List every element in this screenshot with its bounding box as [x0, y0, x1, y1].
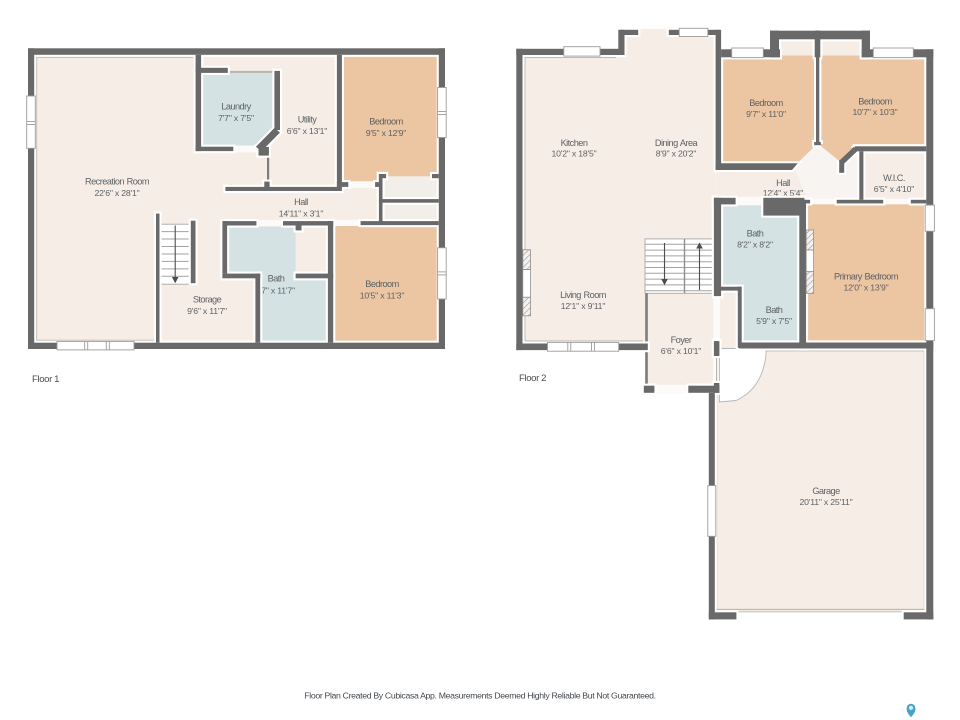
svg-text:9'5" x 12'9": 9'5" x 12'9" [366, 128, 407, 138]
svg-text:Bedroom: Bedroom [369, 117, 403, 127]
svg-text:Bedroom: Bedroom [365, 279, 399, 289]
svg-text:6'5" x 4'10": 6'5" x 4'10" [874, 184, 915, 194]
svg-text:10'5" x 11'3": 10'5" x 11'3" [360, 291, 405, 301]
svg-text:12'1" x 9'11": 12'1" x 9'11" [561, 301, 606, 311]
svg-text:Floor 2: Floor 2 [519, 373, 546, 384]
svg-text:Floor Plan Created By Cubicasa: Floor Plan Created By Cubicasa App. Meas… [304, 691, 655, 701]
svg-text:20'11" x 25'11": 20'11" x 25'11" [799, 497, 852, 507]
svg-text:Hall: Hall [294, 197, 308, 207]
svg-text:Bath: Bath [268, 274, 285, 284]
svg-text:Storage: Storage [193, 295, 222, 305]
svg-text:W.I.C.: W.I.C. [883, 173, 905, 183]
svg-text:Hall: Hall [776, 178, 790, 188]
svg-text:Bath: Bath [747, 229, 764, 239]
svg-text:Foyer: Foyer [671, 335, 692, 345]
svg-text:8'9" x 20'2": 8'9" x 20'2" [656, 149, 697, 159]
svg-text:12'0" x 13'9": 12'0" x 13'9" [843, 283, 888, 293]
svg-text:9'7" x 11'0": 9'7" x 11'0" [746, 109, 786, 119]
svg-text:7'7" x 7'5": 7'7" x 7'5" [218, 113, 254, 123]
svg-text:Garage: Garage [812, 486, 840, 496]
svg-text:5'9" x 7'5": 5'9" x 7'5" [756, 316, 792, 326]
svg-text:Bedroom: Bedroom [858, 97, 892, 107]
svg-text:Recreation Room: Recreation Room [85, 177, 150, 187]
svg-text:6'6" x 13'1": 6'6" x 13'1" [287, 126, 328, 136]
svg-text:10'2" x 18'5": 10'2" x 18'5" [551, 149, 596, 159]
svg-text:Living Room: Living Room [560, 290, 607, 300]
svg-text:Dining Area: Dining Area [655, 138, 699, 148]
svg-text:Bath: Bath [766, 305, 783, 315]
svg-text:14'11" x 3'1": 14'11" x 3'1" [279, 209, 324, 219]
svg-text:8'2" x 8'2": 8'2" x 8'2" [737, 240, 773, 250]
svg-text:10'7" x 10'3": 10'7" x 10'3" [852, 107, 897, 117]
svg-text:Utility: Utility [298, 115, 318, 125]
svg-text:Laundry: Laundry [221, 102, 251, 112]
svg-text:22'6" x 28'1": 22'6" x 28'1" [94, 188, 139, 198]
svg-text:9'6" x 11'7": 9'6" x 11'7" [187, 306, 227, 316]
svg-text:Kitchen: Kitchen [561, 138, 588, 148]
svg-text:Floor 1: Floor 1 [32, 374, 59, 385]
svg-text:6'6" x 10'1": 6'6" x 10'1" [661, 346, 702, 356]
svg-text:Bedroom: Bedroom [749, 98, 783, 108]
svg-text:Primary Bedroom: Primary Bedroom [834, 272, 899, 282]
